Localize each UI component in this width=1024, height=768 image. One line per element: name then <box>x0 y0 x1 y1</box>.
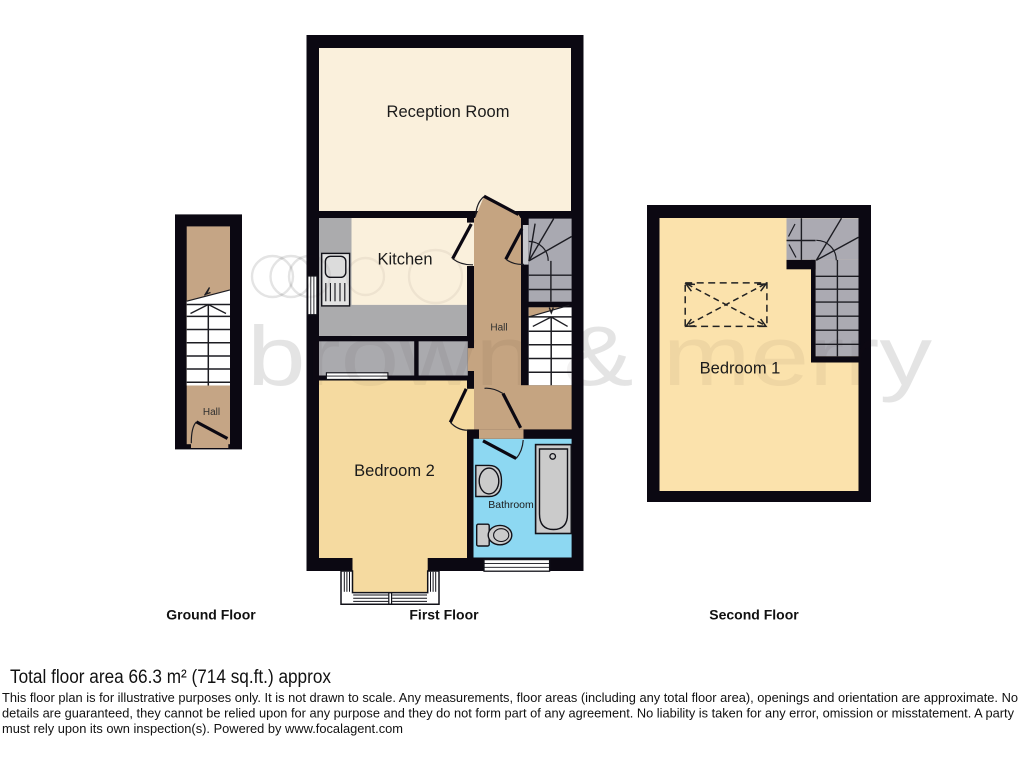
svg-text:Reception Room: Reception Room <box>387 103 510 121</box>
svg-text:details are guaranteed, they c: details are guaranteed, they cannot be r… <box>2 706 1014 721</box>
svg-text:Second Floor: Second Floor <box>709 607 799 623</box>
svg-text:Total floor area 66.3 m² (714: Total floor area 66.3 m² (714 sq.ft.) ap… <box>10 667 331 688</box>
svg-text:Bedroom 2: Bedroom 2 <box>354 462 435 480</box>
svg-text:First Floor: First Floor <box>409 607 479 623</box>
svg-text:Hall: Hall <box>203 407 220 418</box>
svg-text:This floor plan is for illustr: This floor plan is for illustrative purp… <box>2 690 1018 705</box>
svg-text:must rely upon its own inspect: must rely upon its own inspection(s). Po… <box>2 721 403 736</box>
svg-text:Ground Floor: Ground Floor <box>166 607 256 623</box>
svg-text:Bathroom: Bathroom <box>488 499 534 511</box>
